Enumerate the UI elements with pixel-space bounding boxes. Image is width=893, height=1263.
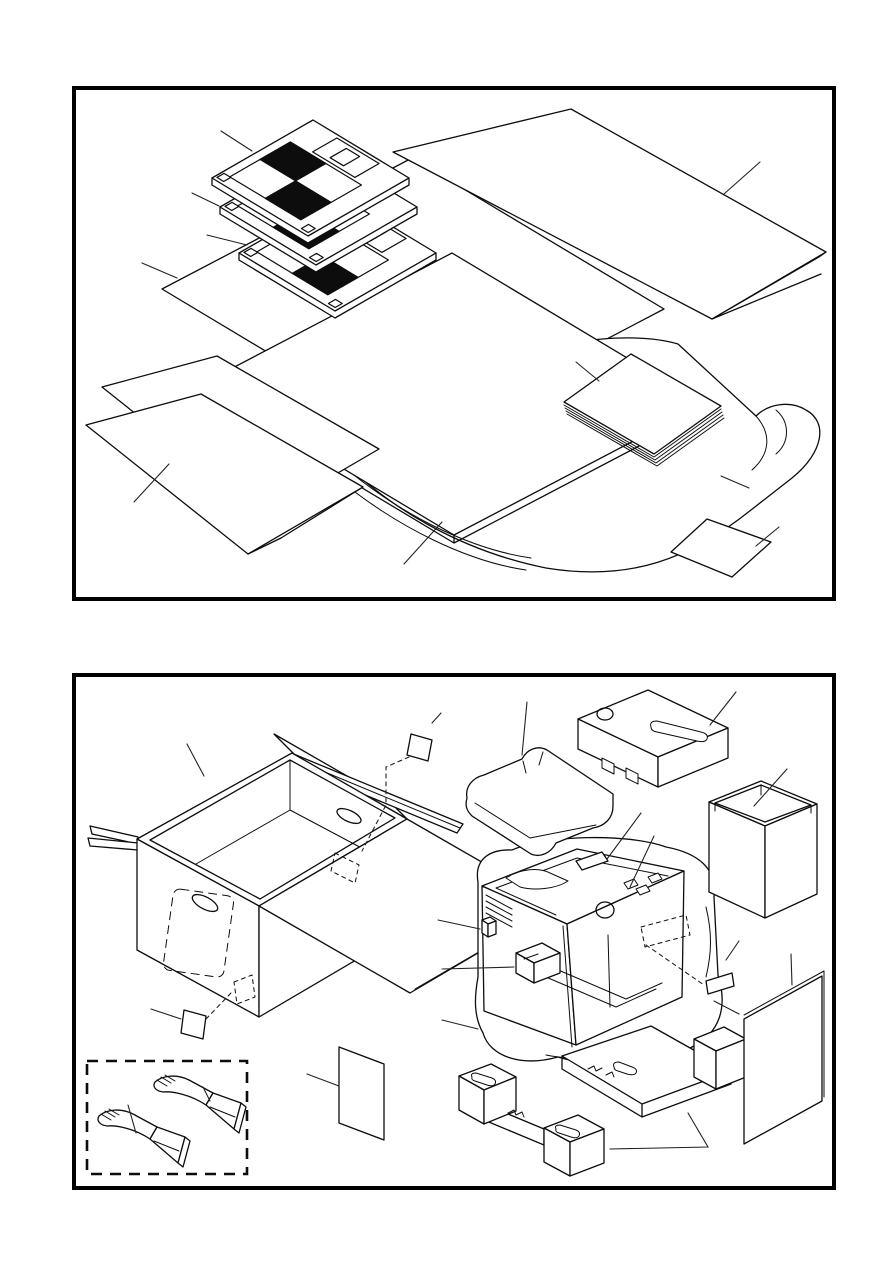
foam-top-insert xyxy=(578,690,728,787)
panel-machine-packing xyxy=(72,673,836,1190)
accessory-packing-drawing xyxy=(76,90,832,597)
packing-card-front xyxy=(181,993,231,1039)
protective-sheet-right xyxy=(744,971,824,1144)
manual-page xyxy=(0,0,893,1263)
accessory-carton xyxy=(709,781,817,918)
flat-sheet-center xyxy=(339,1047,384,1140)
panel-accessory-packing xyxy=(72,86,836,601)
machine-in-plastic-bag xyxy=(475,838,722,1064)
side-block xyxy=(482,917,496,937)
paper-support-bracket-2 xyxy=(154,1075,246,1133)
machine-packing-drawing xyxy=(76,677,832,1186)
paper-support-bracket-1 xyxy=(98,1109,190,1167)
